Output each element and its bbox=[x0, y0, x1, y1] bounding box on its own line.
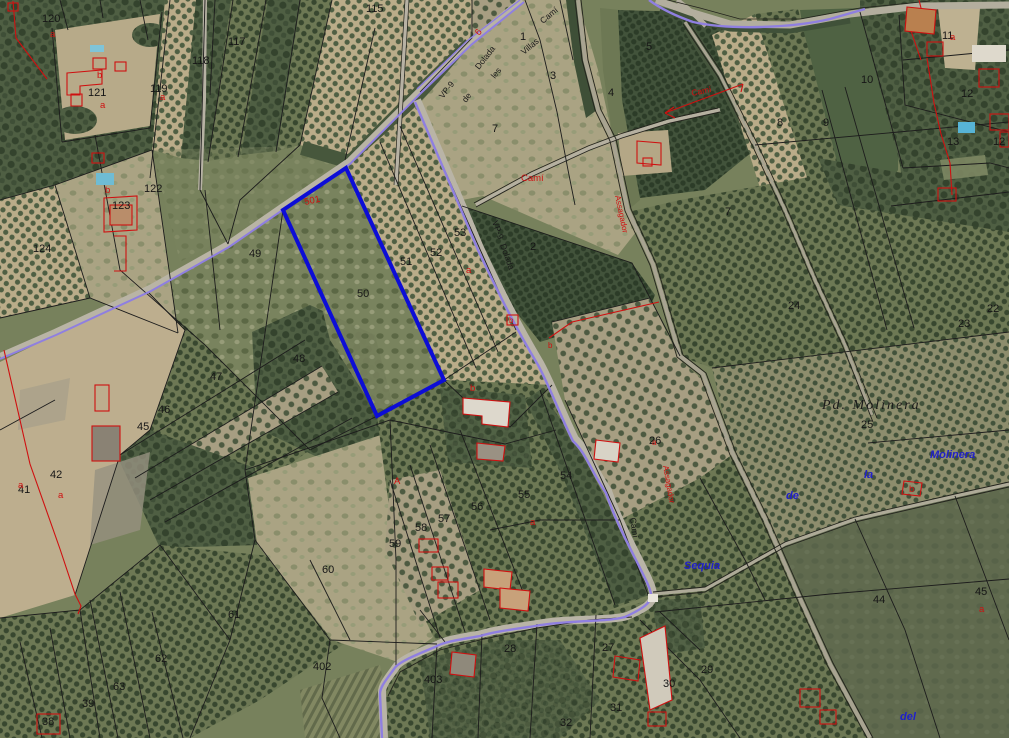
svg-text:57: 57 bbox=[438, 513, 450, 525]
svg-text:48: 48 bbox=[293, 353, 305, 365]
svg-text:b: b bbox=[909, 484, 914, 495]
svg-text:8: 8 bbox=[777, 117, 783, 129]
svg-text:38: 38 bbox=[42, 716, 54, 728]
svg-text:62: 62 bbox=[155, 653, 167, 665]
svg-text:b: b bbox=[97, 70, 102, 81]
svg-text:13: 13 bbox=[947, 136, 959, 148]
svg-text:Sequia: Sequia bbox=[684, 560, 720, 572]
svg-text:12: 12 bbox=[961, 88, 973, 100]
svg-text:63: 63 bbox=[113, 681, 125, 693]
svg-text:123: 123 bbox=[112, 200, 130, 212]
svg-text:120: 120 bbox=[42, 13, 60, 25]
svg-text:4: 4 bbox=[608, 87, 614, 99]
svg-text:7: 7 bbox=[725, 206, 731, 218]
svg-text:10: 10 bbox=[861, 74, 873, 86]
svg-text:29: 29 bbox=[701, 664, 713, 676]
svg-text:Pd. Molinera: Pd. Molinera bbox=[821, 398, 921, 413]
svg-text:32: 32 bbox=[560, 717, 572, 729]
svg-text:a: a bbox=[530, 517, 536, 528]
svg-text:3: 3 bbox=[550, 70, 556, 82]
svg-text:1: 1 bbox=[520, 31, 526, 43]
svg-text:58: 58 bbox=[415, 522, 427, 534]
svg-text:a: a bbox=[100, 100, 106, 111]
svg-text:b: b bbox=[105, 185, 110, 196]
svg-text:de: de bbox=[786, 490, 799, 502]
svg-text:50: 50 bbox=[357, 288, 369, 300]
svg-text:60: 60 bbox=[322, 564, 334, 576]
svg-text:59: 59 bbox=[389, 538, 401, 550]
svg-text:53: 53 bbox=[454, 227, 466, 239]
svg-text:39: 39 bbox=[82, 698, 94, 710]
svg-text:a: a bbox=[979, 604, 985, 615]
svg-text:403: 403 bbox=[424, 674, 442, 686]
svg-text:a: a bbox=[18, 480, 24, 491]
svg-text:47: 47 bbox=[210, 371, 222, 383]
svg-text:122: 122 bbox=[144, 183, 162, 195]
svg-text:45: 45 bbox=[975, 586, 987, 598]
svg-text:a: a bbox=[652, 438, 657, 447]
svg-text:9: 9 bbox=[823, 117, 829, 129]
svg-text:121: 121 bbox=[88, 87, 106, 99]
svg-text:52: 52 bbox=[430, 247, 442, 259]
svg-text:118: 118 bbox=[192, 55, 210, 67]
svg-text:56: 56 bbox=[471, 501, 483, 513]
svg-text:del: del bbox=[900, 711, 917, 723]
svg-text:49: 49 bbox=[249, 248, 261, 260]
svg-text:5: 5 bbox=[646, 41, 652, 53]
svg-text:25: 25 bbox=[861, 419, 873, 431]
svg-text:a: a bbox=[58, 490, 64, 501]
svg-text:22: 22 bbox=[987, 303, 999, 315]
svg-text:51: 51 bbox=[400, 256, 412, 268]
svg-text:24: 24 bbox=[788, 300, 800, 312]
svg-text:b: b bbox=[509, 316, 514, 325]
svg-text:31: 31 bbox=[610, 702, 622, 714]
svg-text:115: 115 bbox=[366, 3, 384, 15]
svg-text:2: 2 bbox=[530, 241, 536, 253]
svg-text:124: 124 bbox=[33, 243, 51, 255]
svg-text:30: 30 bbox=[663, 678, 675, 690]
svg-text:Molinera: Molinera bbox=[930, 449, 975, 461]
svg-text:42: 42 bbox=[50, 469, 62, 481]
svg-text:23: 23 bbox=[958, 318, 970, 330]
svg-text:402: 402 bbox=[313, 661, 331, 673]
svg-text:a: a bbox=[466, 265, 472, 276]
svg-text:27: 27 bbox=[602, 642, 614, 654]
svg-text:12: 12 bbox=[993, 136, 1005, 148]
svg-text:45: 45 bbox=[137, 421, 149, 433]
svg-text:b: b bbox=[548, 341, 553, 350]
svg-text:28: 28 bbox=[504, 643, 516, 655]
svg-text:a: a bbox=[950, 32, 956, 43]
svg-text:55: 55 bbox=[518, 489, 530, 501]
svg-text:a: a bbox=[50, 29, 56, 40]
svg-text:la: la bbox=[864, 469, 873, 481]
svg-text:61: 61 bbox=[228, 609, 240, 621]
svg-text:7: 7 bbox=[492, 123, 498, 135]
svg-text:44: 44 bbox=[873, 594, 885, 606]
svg-text:46: 46 bbox=[158, 404, 170, 416]
svg-text:A: A bbox=[394, 476, 401, 487]
svg-text:a: a bbox=[160, 92, 166, 103]
svg-text:117: 117 bbox=[228, 36, 246, 48]
svg-text:Camí: Camí bbox=[521, 173, 544, 184]
svg-text:b: b bbox=[470, 383, 475, 394]
